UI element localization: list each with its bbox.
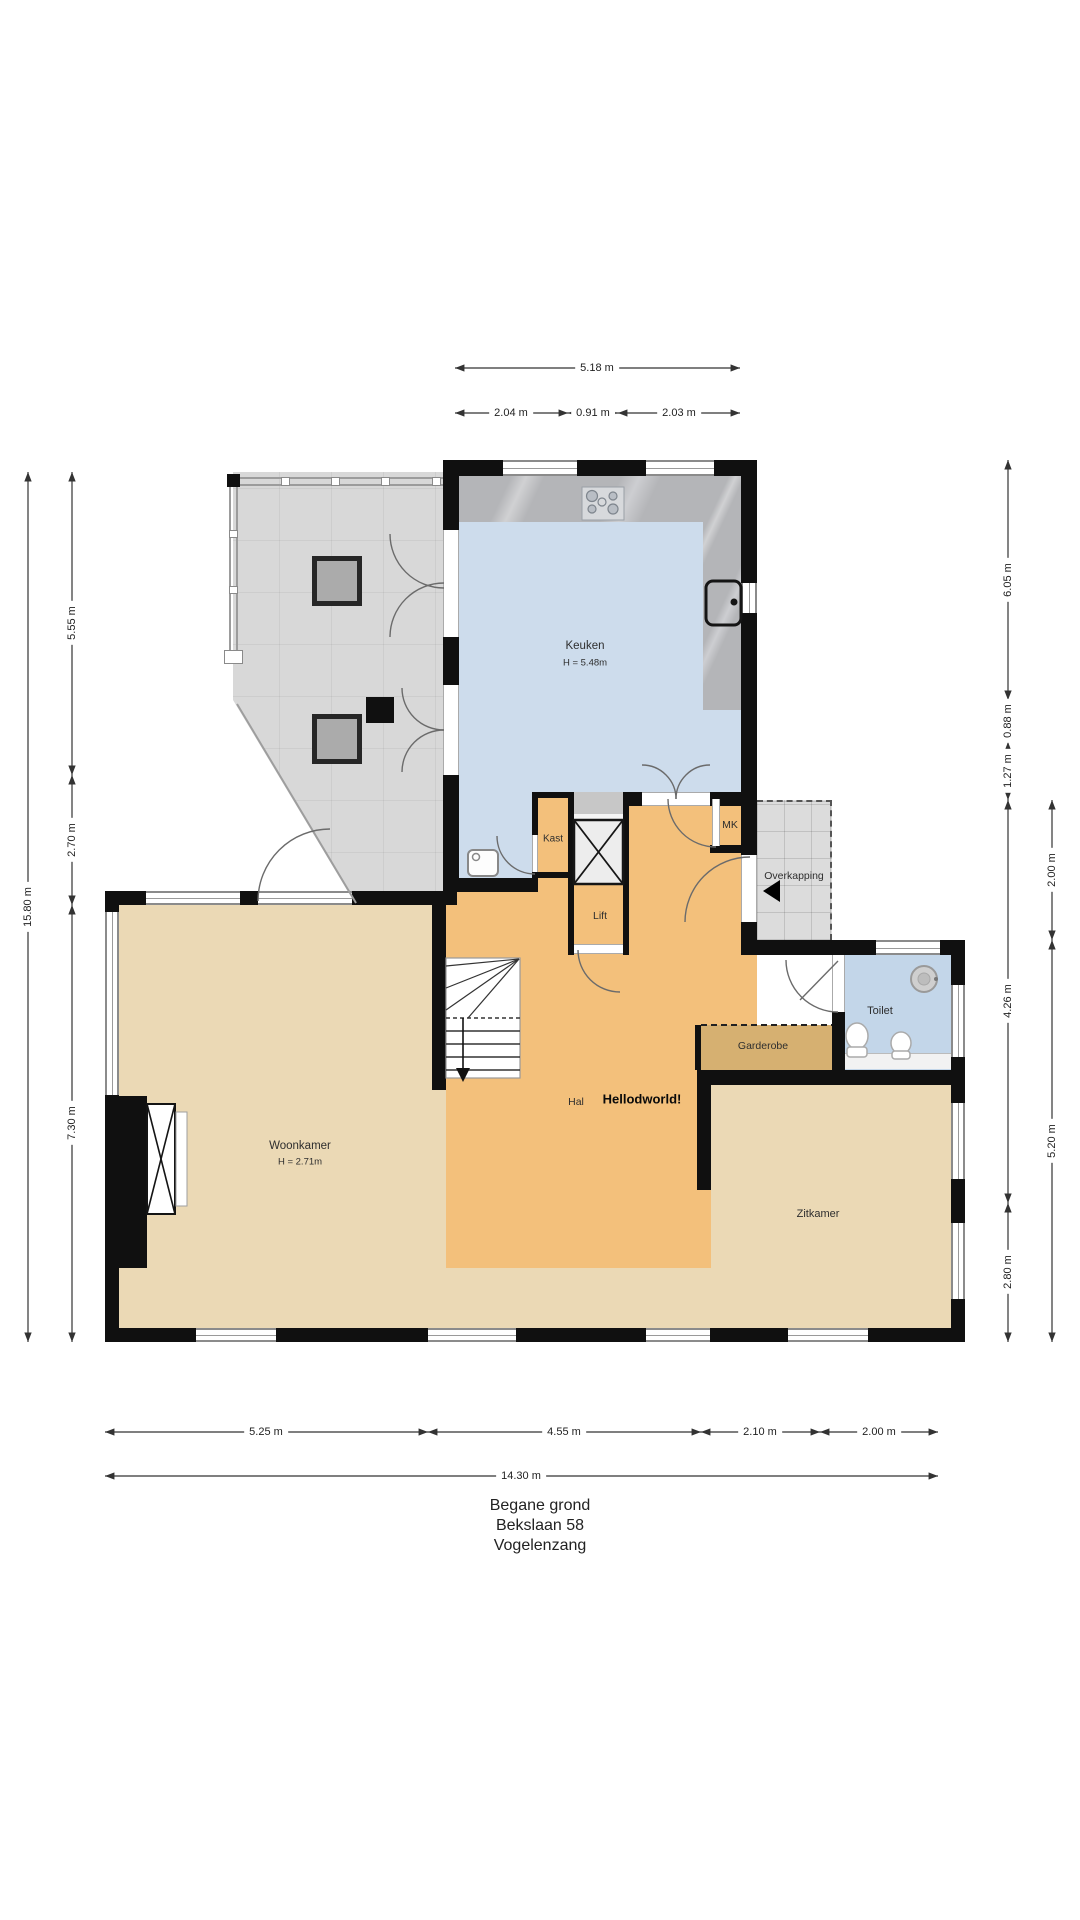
room-label-toilet: Toilet	[867, 1005, 893, 1017]
hello-world-text: Hellodworld!	[603, 1092, 682, 1107]
dim-label-top-c: 2.03 m	[657, 407, 701, 419]
dim-label-left-total: 15.80 m	[22, 882, 34, 932]
plan-title-city: Vogelenzang	[490, 1536, 591, 1556]
room-height-keuken: H = 5.48m	[563, 658, 607, 669]
dim-label-right-e: 2.80 m	[1002, 1250, 1014, 1294]
fixtures	[468, 487, 938, 1059]
room-label-overkapping: Overkapping	[764, 870, 824, 882]
dim-label-right-a: 6.05 m	[1002, 558, 1014, 602]
dim-label-right-f: 2.00 m	[1046, 848, 1058, 892]
room-label-hal: Hal	[568, 1096, 584, 1108]
plan-title-block: Begane grond Bekslaan 58 Vogelenzang	[490, 1496, 591, 1556]
radiator-fixture	[147, 1104, 187, 1214]
room-label-lift: Lift	[593, 910, 607, 922]
staircase	[446, 958, 520, 1082]
dim-label-left-a: 5.55 m	[66, 601, 78, 645]
room-label-garderobe: Garderobe	[738, 1040, 788, 1052]
door-arcs	[258, 534, 838, 1012]
dim-label-right-g: 5.20 m	[1046, 1119, 1058, 1163]
room-label-mk: MK	[722, 819, 738, 831]
dim-label-top-total: 5.18 m	[575, 362, 619, 374]
dim-label-top-a: 2.04 m	[489, 407, 533, 419]
floorplan-canvas: Keuken H = 5.48m Kast Lift MK Overkappin…	[0, 0, 1080, 1920]
plan-title-street: Bekslaan 58	[490, 1516, 591, 1536]
dim-label-bottom-d: 2.00 m	[857, 1426, 901, 1438]
plan-linework	[0, 0, 1080, 1920]
lift-shaft	[574, 820, 623, 884]
dim-label-bottom-c: 2.10 m	[738, 1426, 782, 1438]
dim-label-top-b: 0.91 m	[571, 407, 615, 419]
dim-label-right-d: 4.26 m	[1002, 979, 1014, 1023]
dim-label-right-b: 0.88 m	[1002, 699, 1014, 743]
dim-label-left-c: 7.30 m	[66, 1101, 78, 1145]
room-label-keuken: Keuken	[565, 640, 604, 652]
room-height-woonkamer: H = 2.71m	[278, 1157, 322, 1168]
dim-label-left-b: 2.70 m	[66, 818, 78, 862]
room-label-kast: Kast	[543, 834, 563, 845]
room-label-woonkamer: Woonkamer	[269, 1140, 331, 1152]
dimension-lines	[28, 368, 1052, 1476]
dim-label-right-c: 1.27 m	[1002, 749, 1014, 793]
plan-title-floor: Begane grond	[490, 1496, 591, 1516]
dim-label-bottom-b: 4.55 m	[542, 1426, 586, 1438]
dim-label-bottom-a: 5.25 m	[244, 1426, 288, 1438]
room-label-zitkamer: Zitkamer	[797, 1208, 840, 1220]
dim-label-bottom-total: 14.30 m	[496, 1470, 546, 1482]
terrace-edge	[237, 704, 356, 903]
